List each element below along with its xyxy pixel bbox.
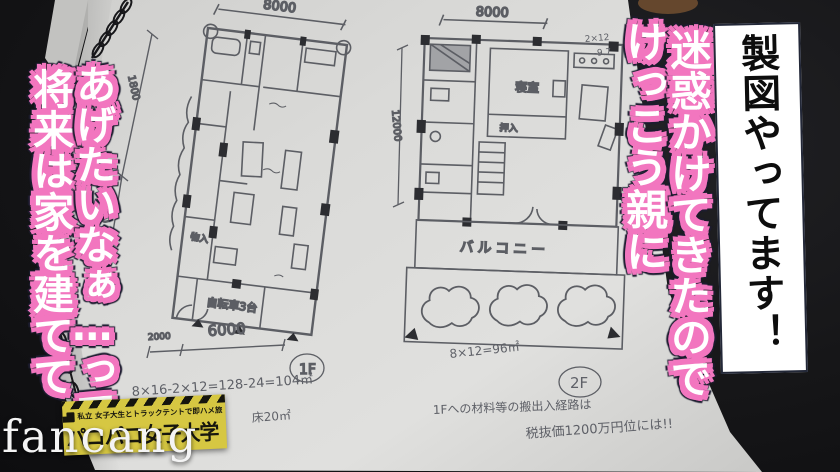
label-balcony: バルコニー	[459, 239, 549, 258]
caption-right-col1: けっこう親に	[622, 20, 666, 398]
label-bedroom: 寝室	[515, 79, 540, 95]
floor-label-2f: 2F	[570, 374, 588, 392]
caption-left-col1: 将来は家を建てて	[28, 68, 71, 430]
caption-right: けっこう親に 迷惑かけてきたので	[622, 20, 708, 398]
caption-left: 将来は家を建てて あげたいなぁ…って	[28, 64, 112, 430]
dim-1f-bottom-left: 2000	[148, 332, 172, 343]
watermark: fancang	[2, 410, 198, 463]
dim-2f-top: 8000	[475, 5, 509, 21]
video-frame: 物入 自転車3台 8000 1800 2000 2000 6000 1F	[0, 0, 840, 472]
note-corner-2: -9.7	[593, 47, 611, 58]
table-edge	[638, 0, 698, 14]
caption-banner: 製図やってます！	[713, 22, 808, 374]
note-floor-1f: 床20㎡	[251, 408, 291, 425]
dim-1f-bottom-right: 6000	[207, 319, 246, 340]
caption-right-col2: 迷惑かけてきたので	[666, 29, 709, 398]
label-closet: 押入	[499, 122, 517, 135]
caption-left-col2: あげたいなぁ…って	[71, 64, 113, 430]
caption-banner-text: 製図やってます！	[737, 25, 784, 372]
